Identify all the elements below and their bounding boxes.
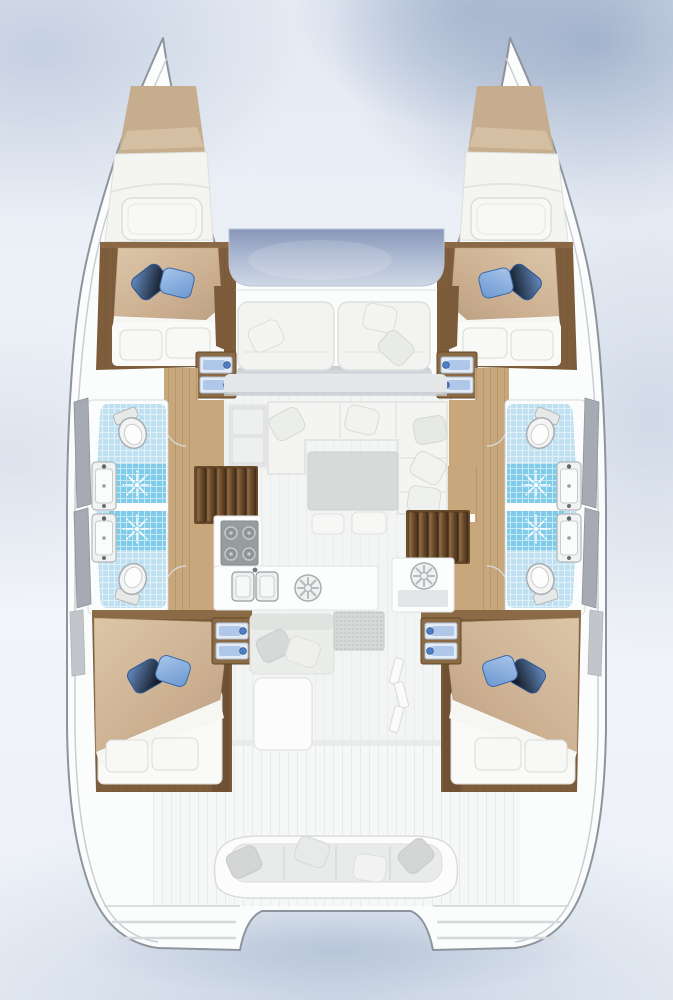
stair-tread — [207, 468, 216, 522]
chaise-back — [250, 614, 334, 630]
stair-tread — [429, 512, 438, 562]
nav-counter-panel — [233, 438, 263, 462]
entry-mat-texture — [334, 612, 384, 650]
stair-tread — [459, 512, 468, 562]
stair-tread — [227, 468, 236, 522]
throw-pillow — [352, 853, 387, 883]
galley-unit-front — [398, 590, 448, 607]
stair-tread — [217, 468, 226, 522]
nav-counter-panel — [233, 410, 263, 434]
port-companionway-stairs — [194, 466, 258, 524]
catamaran-floor-plan: Catamaran sailing yacht layout plan, top… — [0, 0, 673, 1000]
stair-tread — [409, 512, 418, 562]
fridge-icon — [411, 563, 437, 589]
fridge-icon — [295, 575, 321, 601]
throw-pillow — [412, 414, 448, 445]
corridor-floor — [448, 466, 476, 514]
sun-pad — [254, 678, 312, 750]
windshield-line — [224, 392, 447, 396]
stool — [312, 514, 344, 534]
bow-trampoline — [229, 229, 444, 290]
stair-tread — [419, 512, 428, 562]
stair-tread — [197, 468, 206, 522]
stool — [352, 512, 386, 534]
stair-tread — [237, 468, 246, 522]
stair-tread — [247, 468, 256, 522]
stair-tread — [439, 512, 448, 562]
trampoline-sheen — [248, 240, 392, 280]
saloon-table — [308, 452, 398, 510]
cockpit-bench — [215, 834, 458, 898]
stair-tread — [449, 512, 458, 562]
windshield-band — [224, 374, 447, 394]
stove-icon — [221, 521, 258, 565]
floor-plan-svg: Catamaran sailing yacht layout plan, top… — [0, 0, 673, 1000]
